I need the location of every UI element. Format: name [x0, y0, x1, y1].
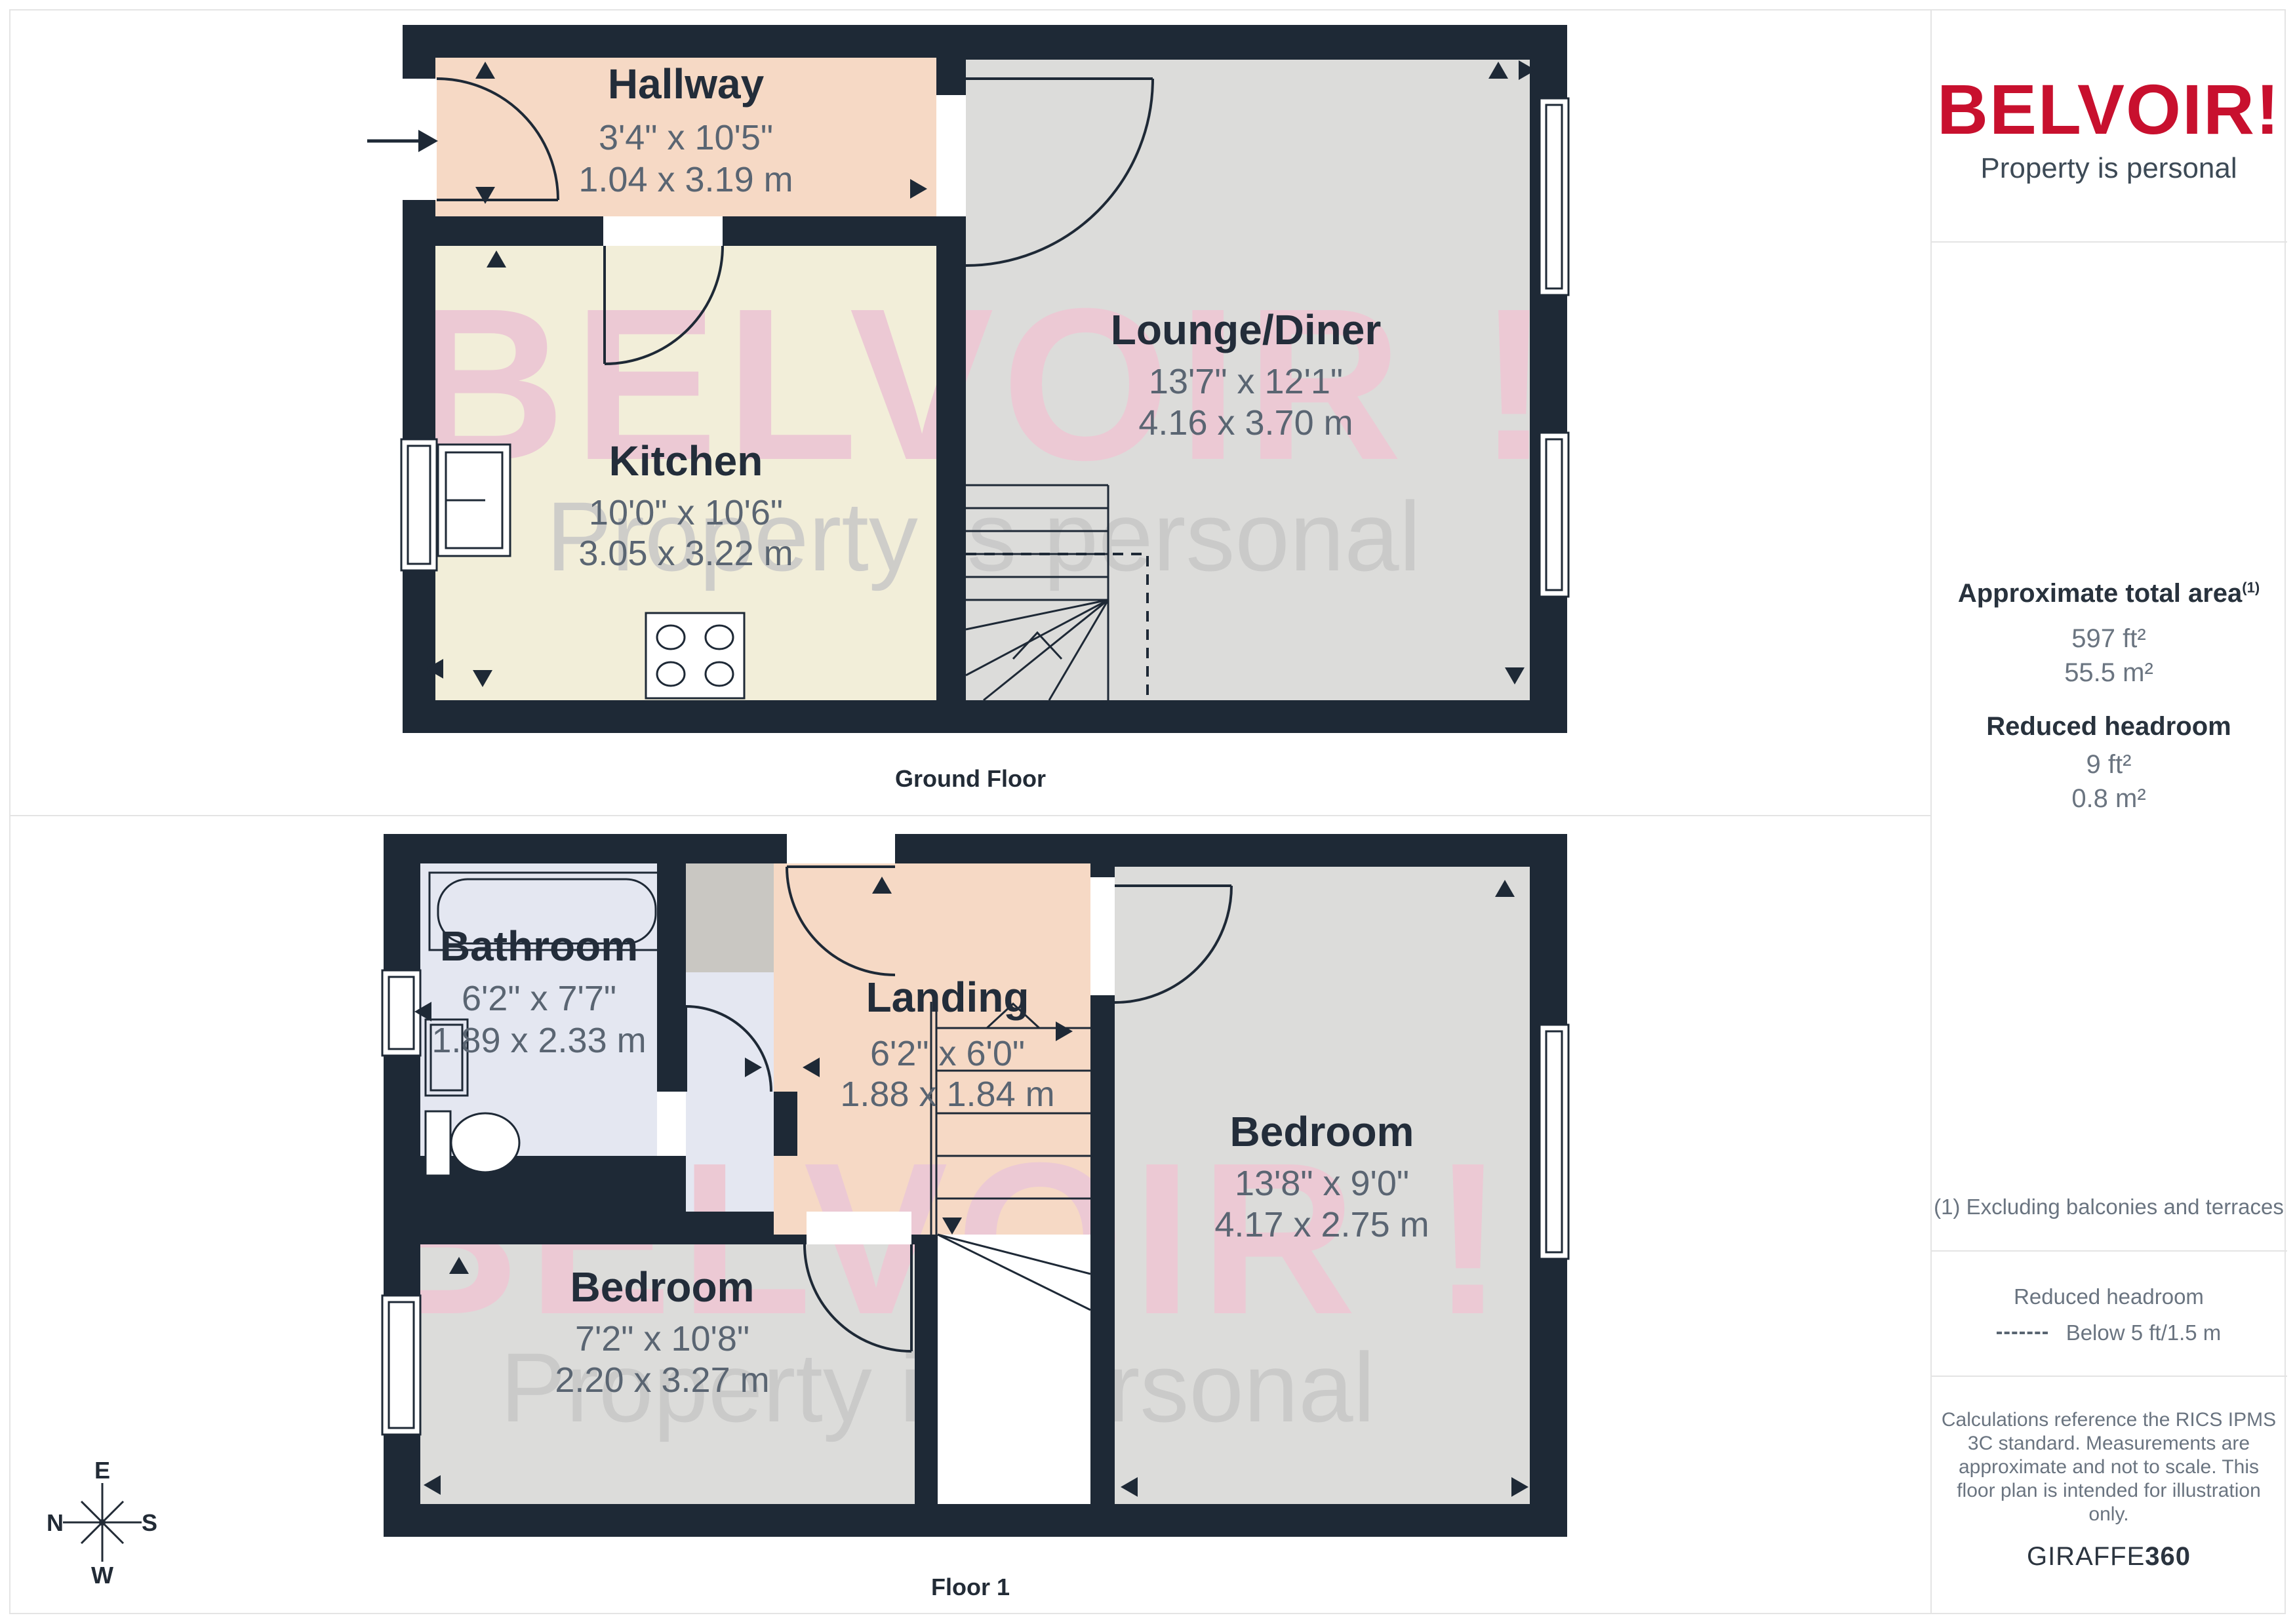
landing-imperial: 6'2" x 6'0" — [870, 1034, 1025, 1073]
lounge-metric: 4.16 x 3.70 m — [1138, 403, 1353, 443]
giraffe-text: GIRAFFE — [2027, 1542, 2145, 1571]
compass-right: S — [142, 1509, 157, 1536]
cooktop — [646, 613, 744, 698]
lounge-label: Lounge/Diner — [1111, 306, 1381, 353]
disclaimer: Calculations reference the RICS IPMS 3C … — [1930, 1408, 2287, 1526]
hallway-metric: 1.04 x 3.19 m — [578, 160, 793, 199]
lounge-window-lower — [1540, 433, 1568, 597]
area-title-sup: (1) — [2242, 580, 2260, 596]
giraffe-360-text: 360 — [2145, 1542, 2191, 1571]
bathroom-wall-stub — [657, 863, 686, 1092]
bathroom-window — [382, 970, 420, 1056]
giraffe360-credit: GIRAFFE360 — [1930, 1542, 2287, 1572]
hallway-imperial: 3'4" x 10'5" — [599, 118, 773, 157]
kitchen-label: Kitchen — [609, 437, 763, 485]
compass-left: N — [47, 1509, 64, 1536]
compass-top: E — [94, 1457, 110, 1484]
bedroom-right-door-opening — [1090, 877, 1115, 995]
reduced-m: 0.8 m² — [1930, 784, 2287, 814]
kitchen-window — [401, 439, 437, 570]
area-ft: 597 ft² — [1930, 624, 2287, 654]
disclaimer-line-4: floor plan is intended for illustration — [1930, 1479, 2287, 1503]
bedroom-left-imperial: 7'2" x 10'8" — [575, 1319, 749, 1358]
landing-metric: 1.88 x 1.84 m — [840, 1075, 1054, 1114]
lounge-door-opening — [936, 95, 966, 216]
footnote: (1) Excluding balconies and terraces — [1930, 1195, 2287, 1219]
bathroom-metric: 1.89 x 2.33 m — [431, 1021, 646, 1060]
info-sidebar: BELVOIR! Property is personal Approximat… — [1930, 9, 2287, 1613]
bedroom-right-imperial: 13'8" x 9'0" — [1235, 1164, 1409, 1203]
lounge-imperial: 13'7" x 12'1" — [1149, 362, 1343, 401]
compass-bottom: W — [91, 1562, 113, 1589]
floor-1-label: Floor 1 — [931, 1574, 1010, 1600]
legend-value: Below 5 ft/1.5 m — [2066, 1320, 2222, 1345]
ground-floor-label: Ground Floor — [895, 765, 1046, 792]
hallway-label: Hallway — [608, 60, 765, 108]
belvoir-logo: BELVOIR! — [1930, 68, 2287, 150]
sidebar-section-divider-1 — [1932, 241, 2287, 243]
disclaimer-line-1: Calculations reference the RICS IPMS — [1930, 1408, 2287, 1432]
area-title: Approximate total area(1) — [1930, 579, 2287, 608]
compass-icon — [63, 1483, 142, 1562]
reduced-ft: 9 ft² — [1930, 750, 2287, 780]
kitchen-imperial: 10'0" x 10'6" — [589, 493, 783, 532]
bathroom-imperial: 6'2" x 7'7" — [462, 979, 616, 1018]
kitchen-sink — [438, 445, 510, 556]
kitchen-metric: 3.05 x 3.22 m — [578, 534, 793, 573]
legend-title: Reduced headroom — [1930, 1284, 2287, 1309]
watermark-brand-text: BELVOIR ! — [409, 263, 1558, 505]
landing-top-door-opening — [787, 834, 895, 863]
bedroom-left-metric: 2.20 x 3.27 m — [555, 1360, 769, 1400]
bedroom-right-label: Bedroom — [1230, 1108, 1414, 1155]
dashed-line-icon — [1997, 1332, 2048, 1334]
legend-row: Below 5 ft/1.5 m — [1930, 1320, 2287, 1345]
sidebar-section-divider-2 — [1932, 1250, 2287, 1252]
area-title-text: Approximate total area — [1958, 579, 2242, 608]
disclaimer-line-2: 3C standard. Measurements are — [1930, 1432, 2287, 1456]
disclaimer-line-5: only. — [1930, 1503, 2287, 1526]
brand-tagline: Property is personal — [1930, 152, 2287, 185]
floorplan-page: BELVOIR ! Property is personal — [0, 0, 2295, 1624]
stair-void — [938, 1235, 1090, 1504]
area-m: 55.5 m² — [1930, 658, 2287, 688]
bathroom-label: Bathroom — [440, 922, 638, 970]
toilet — [426, 1111, 519, 1176]
bedroom-right-window — [1540, 1025, 1568, 1259]
bedroom-left-window — [382, 1296, 420, 1435]
sidebar-section-divider-3 — [1932, 1376, 2287, 1377]
kitchen-door-opening — [603, 216, 723, 246]
lounge-window-upper — [1540, 98, 1568, 295]
disclaimer-line-3: approximate and not to scale. This — [1930, 1456, 2287, 1479]
closet — [686, 863, 774, 972]
reduced-headroom-title: Reduced headroom — [1930, 712, 2287, 742]
bedroom-left-door-opening — [807, 1212, 911, 1244]
bathroom-door-opening — [657, 1092, 686, 1156]
bedroom-left-label: Bedroom — [570, 1263, 755, 1311]
floor-1-plan: BELVOIR ! Property is personal — [0, 815, 1930, 1613]
landing-label: Landing — [866, 974, 1029, 1021]
ground-floor-plan: BELVOIR ! Property is personal — [0, 0, 1930, 815]
bedroom-right-metric: 4.17 x 2.75 m — [1214, 1205, 1429, 1244]
